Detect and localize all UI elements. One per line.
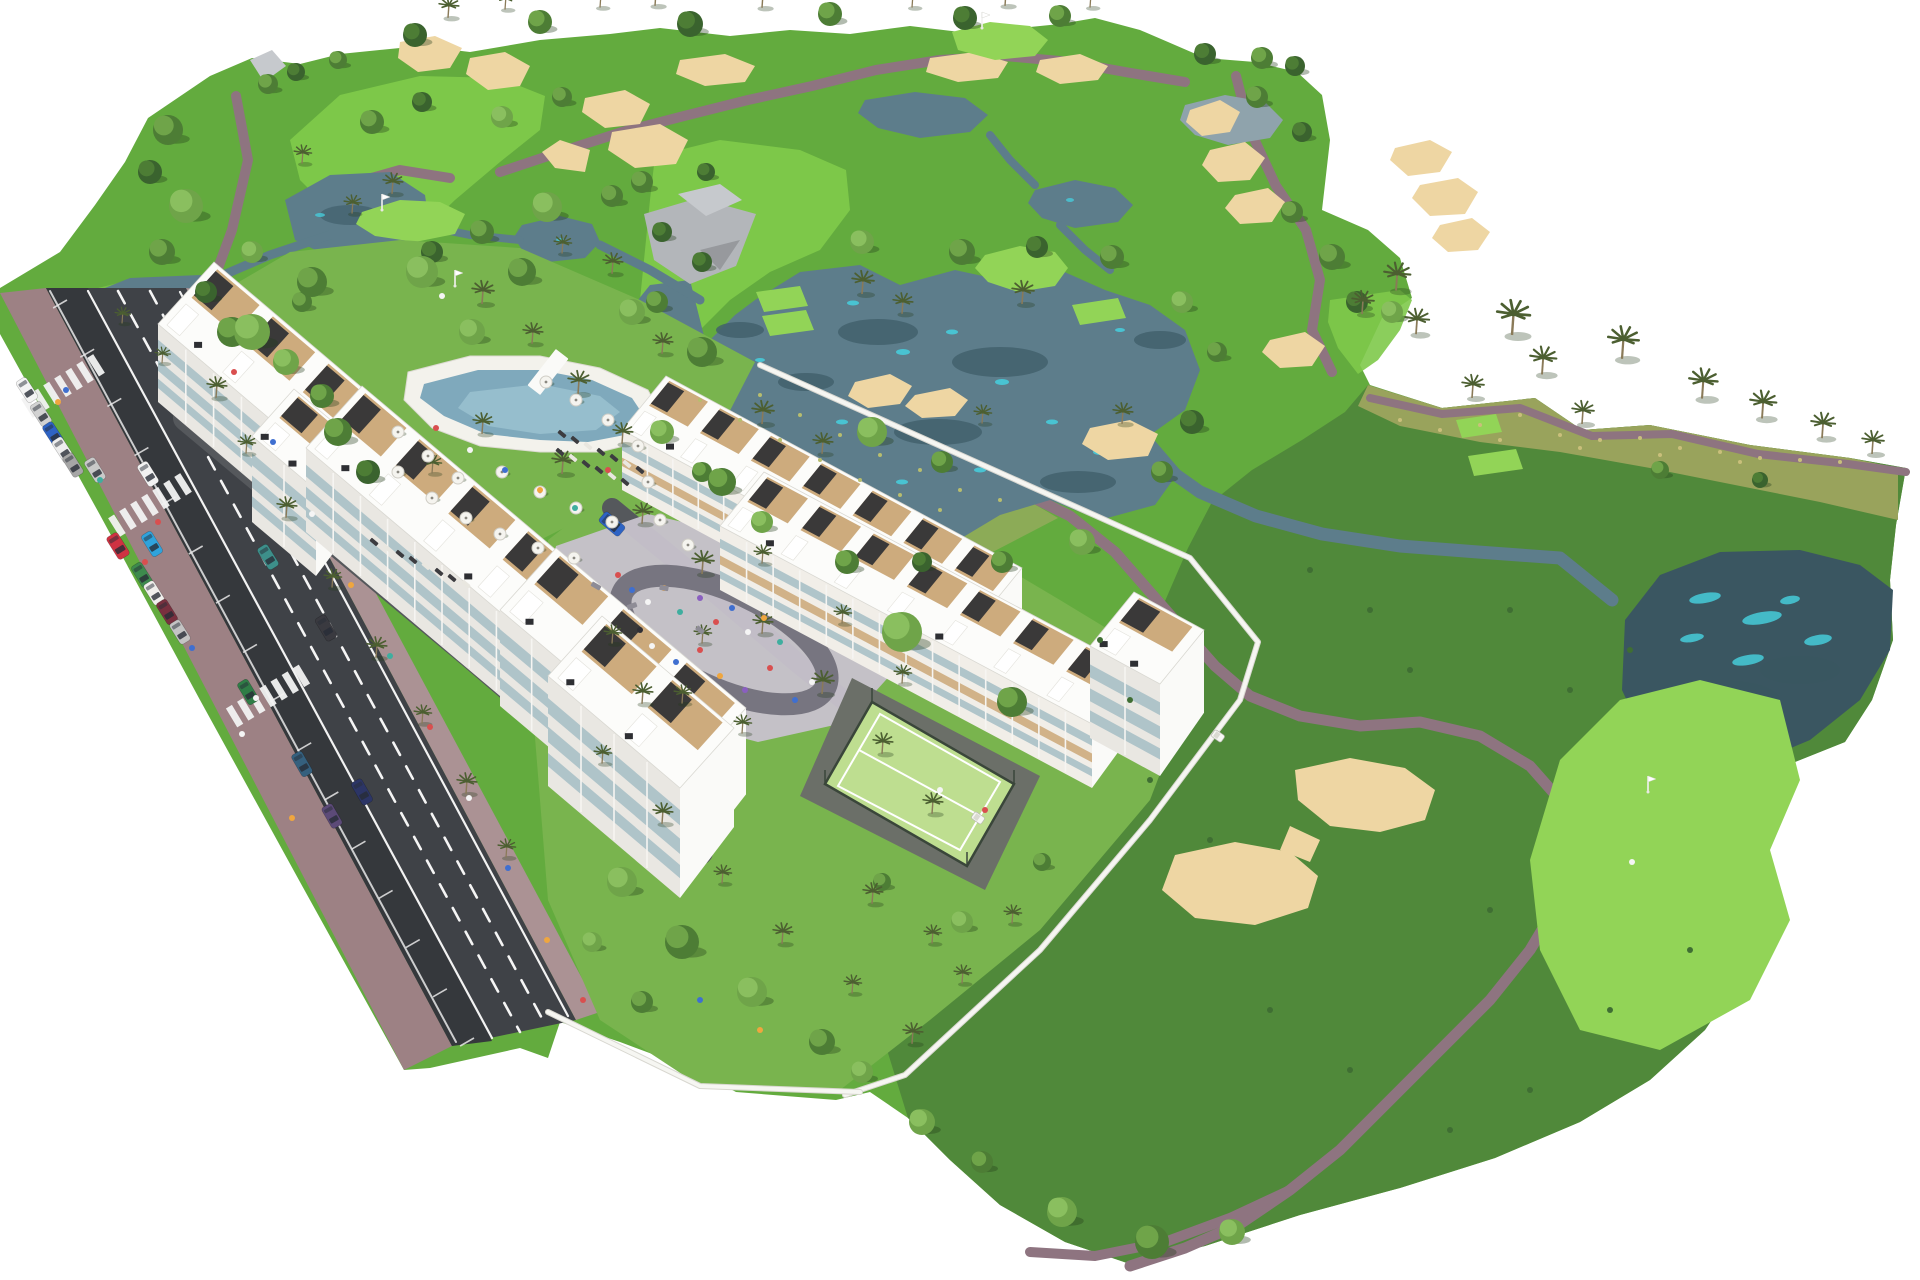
palm-tree-icon xyxy=(439,0,460,21)
palm-tree-icon xyxy=(1497,300,1531,341)
palm-tree-icon xyxy=(1689,368,1719,403)
tree-icon xyxy=(403,23,432,47)
tree-icon xyxy=(818,2,847,26)
roof-unit xyxy=(666,444,674,450)
roof-unit xyxy=(261,434,269,440)
roof-unit xyxy=(526,619,534,625)
palm-tree-icon xyxy=(1462,375,1485,402)
palm-tree-icon xyxy=(1572,401,1595,428)
palm-tree-icon xyxy=(1405,309,1430,339)
palm-tree-icon xyxy=(753,0,774,11)
roof-unit xyxy=(341,465,349,471)
roof-unit xyxy=(566,679,574,685)
tree-icon xyxy=(1049,5,1076,27)
tree-icon xyxy=(528,10,557,34)
roof-unit xyxy=(1130,661,1138,667)
palm-tree-icon xyxy=(904,0,922,11)
bunker xyxy=(1412,178,1478,216)
tree-icon xyxy=(1194,43,1221,65)
roof-unit xyxy=(935,634,943,640)
tree-icon xyxy=(677,11,709,37)
palm-tree-icon xyxy=(1082,0,1100,11)
site-plan-rendering xyxy=(0,0,1920,1280)
tree-icon xyxy=(1251,47,1278,69)
roof-unit xyxy=(625,733,633,739)
roof-unit xyxy=(464,573,472,579)
tree-icon xyxy=(1285,56,1310,76)
palm-tree-icon xyxy=(1811,413,1836,443)
palm-tree-icon xyxy=(592,0,610,11)
palm-tree-icon xyxy=(646,0,667,9)
palm-tree-icon xyxy=(1862,431,1885,458)
palm-tree-icon xyxy=(1530,347,1557,380)
palm-tree-icon xyxy=(497,0,515,13)
tree-icon xyxy=(953,6,982,30)
bunker xyxy=(1390,140,1452,176)
palm-tree-icon xyxy=(1750,391,1777,424)
palm-tree-icon xyxy=(996,0,1017,9)
palm-tree-icon xyxy=(1608,326,1640,364)
golf-resort-aerial-render xyxy=(0,0,1920,1280)
roof-unit xyxy=(288,461,296,467)
roof-unit xyxy=(194,342,202,348)
bunker xyxy=(1432,218,1490,252)
